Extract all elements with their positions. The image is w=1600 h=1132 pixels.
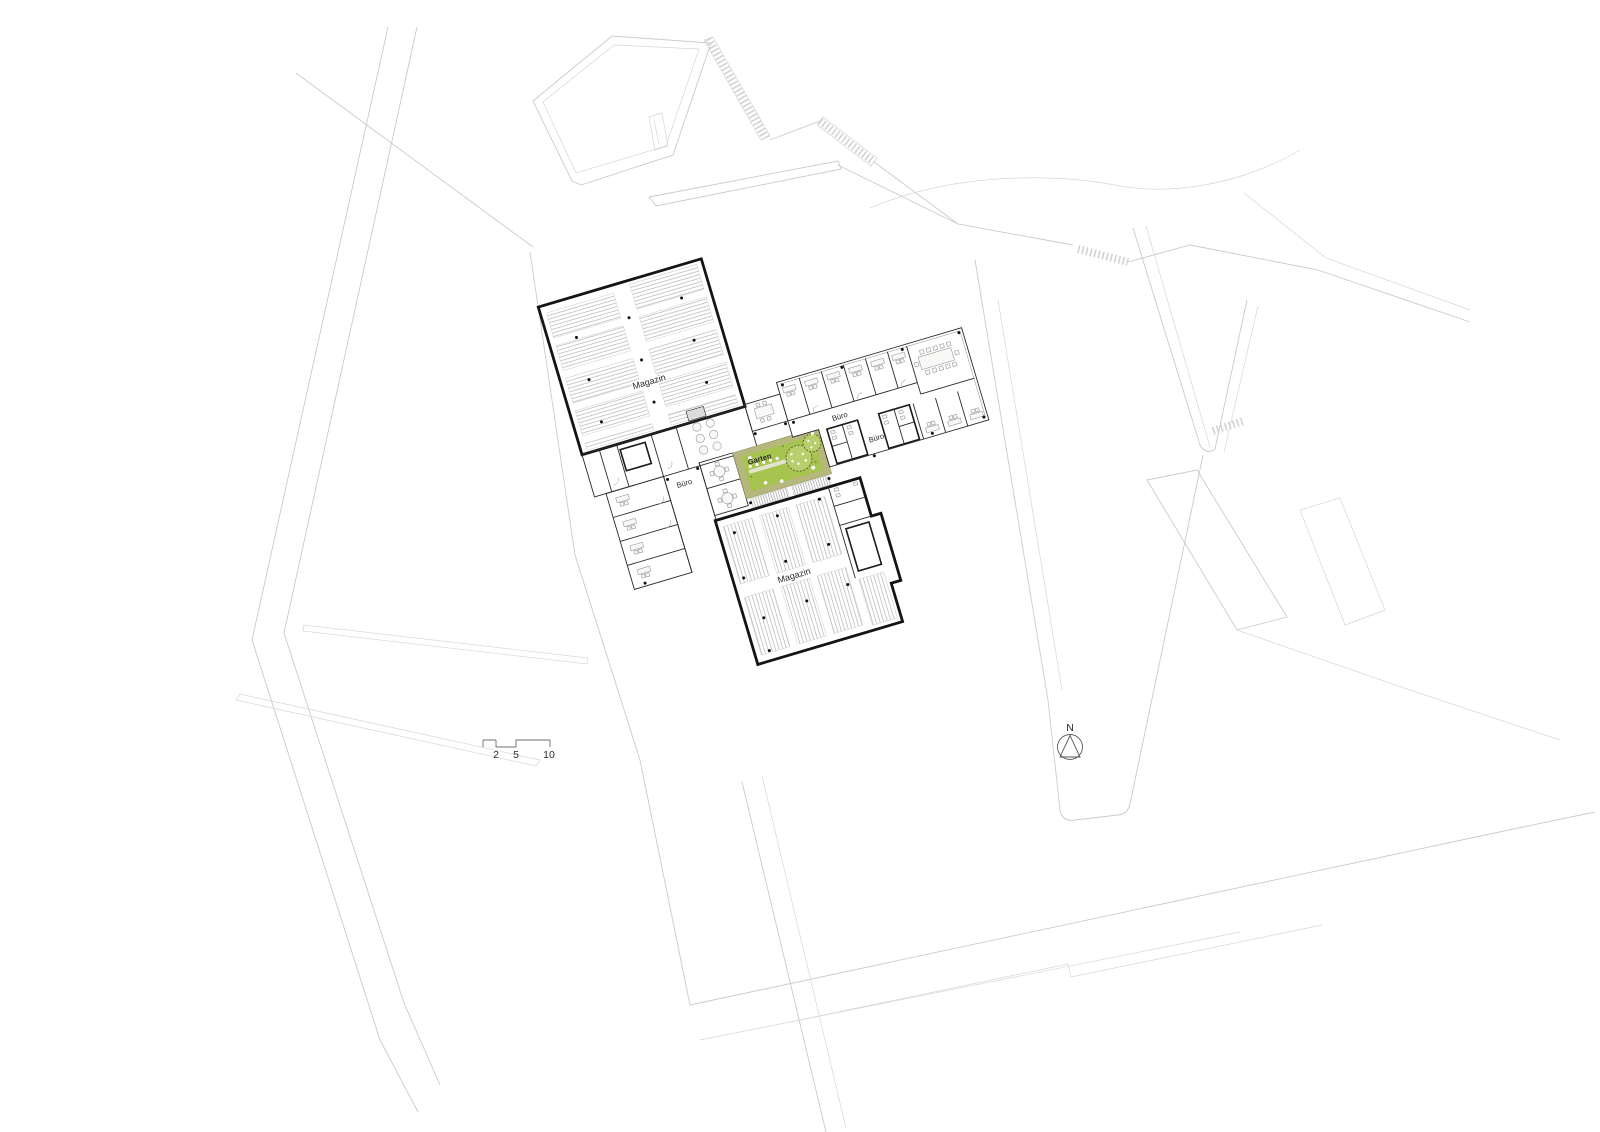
site-context-lines <box>236 27 1595 1132</box>
scale-tick-10: 10 <box>543 749 555 761</box>
north-label: N <box>1066 722 1074 734</box>
label-buero-left: Büro <box>675 477 693 490</box>
floor-plan-drawing: Magazin <box>0 0 1600 1132</box>
lounge-stools <box>692 418 723 455</box>
north-arrow-icon: N <box>1058 722 1083 760</box>
staircase-upper <box>620 442 651 470</box>
office-band-left: Büro <box>605 463 728 590</box>
scale-tick-2: 2 <box>493 749 499 761</box>
scale-bar-line <box>483 740 550 747</box>
magazin-lower-block: Magazin <box>715 475 912 665</box>
site-plan-page: Magazin <box>0 0 1600 1132</box>
scale-bar: 2 5 10 <box>483 740 555 761</box>
scale-tick-5: 5 <box>513 749 519 761</box>
building-plan: Magazin <box>538 193 1037 695</box>
